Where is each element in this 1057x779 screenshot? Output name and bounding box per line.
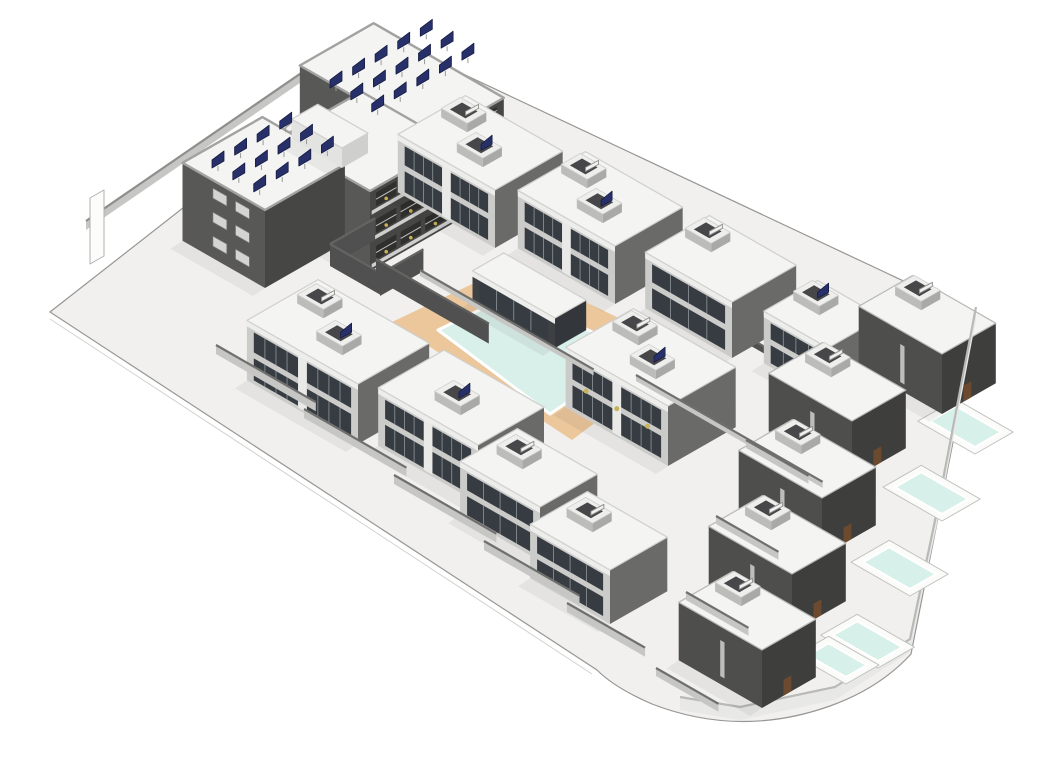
terrace-plant-icon <box>645 424 650 429</box>
balcony-plant-icon <box>409 236 413 240</box>
balcony-plant-icon <box>384 250 388 254</box>
site-3d-render <box>40 16 1057 763</box>
terrace-plant-icon <box>614 406 619 411</box>
terrace-plant-icon <box>584 389 589 394</box>
entrance-sign <box>90 190 104 264</box>
balcony-plant-icon <box>384 223 388 227</box>
render-canvas <box>40 16 1057 763</box>
